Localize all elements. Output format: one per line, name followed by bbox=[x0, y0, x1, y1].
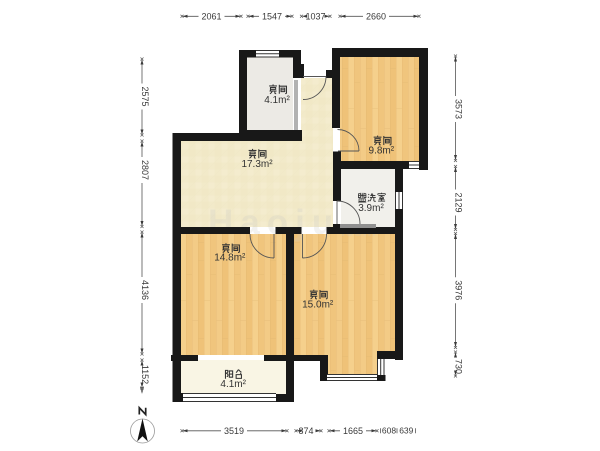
svg-text:2129: 2129 bbox=[454, 192, 464, 212]
svg-text:14.8m²: 14.8m² bbox=[214, 253, 246, 264]
svg-text:639: 639 bbox=[399, 426, 413, 436]
svg-text:874: 874 bbox=[298, 426, 313, 436]
svg-text:608: 608 bbox=[382, 426, 396, 436]
svg-text:17.3m²: 17.3m² bbox=[241, 159, 273, 170]
svg-text:2061: 2061 bbox=[201, 12, 221, 22]
svg-text:1665: 1665 bbox=[343, 426, 363, 436]
svg-text:730: 730 bbox=[454, 359, 464, 374]
svg-text:1547: 1547 bbox=[262, 12, 282, 22]
svg-text:4136: 4136 bbox=[140, 280, 150, 300]
svg-text:1037: 1037 bbox=[305, 12, 325, 22]
svg-text:2807: 2807 bbox=[140, 160, 150, 180]
svg-text:3573: 3573 bbox=[454, 99, 464, 119]
svg-text:1152: 1152 bbox=[140, 365, 150, 384]
svg-text:2660: 2660 bbox=[366, 12, 386, 22]
svg-text:15.0m²: 15.0m² bbox=[302, 299, 334, 310]
svg-text:3519: 3519 bbox=[224, 426, 244, 436]
svg-text:3.9m²: 3.9m² bbox=[358, 203, 384, 214]
svg-text:4.1m²: 4.1m² bbox=[220, 379, 246, 390]
svg-text:9.8m²: 9.8m² bbox=[369, 145, 395, 156]
svg-text:3976: 3976 bbox=[454, 280, 464, 300]
svg-text:4.1m²: 4.1m² bbox=[264, 95, 290, 106]
svg-text:2575: 2575 bbox=[140, 86, 150, 106]
